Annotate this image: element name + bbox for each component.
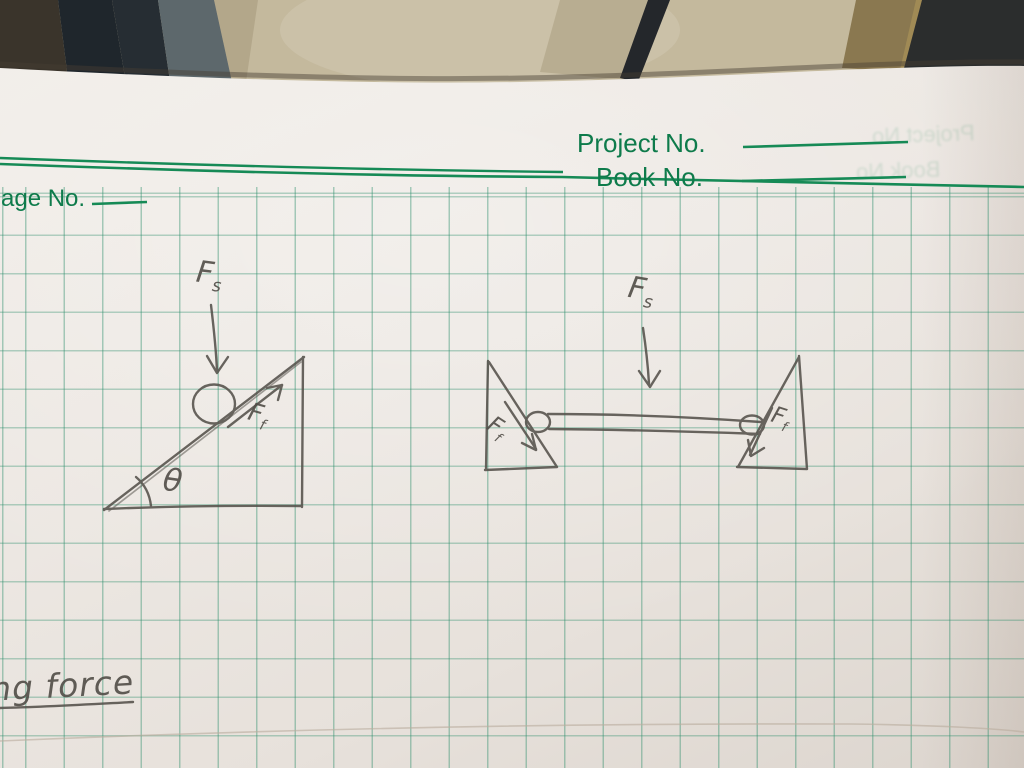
left-spring-force-label: Fs xyxy=(194,255,225,297)
caption-text: ng force xyxy=(0,662,135,708)
notebook-page: Project No. Book No. age No. Project No … xyxy=(0,0,1024,768)
page-curl-shadow xyxy=(0,724,1024,741)
left-roller xyxy=(526,412,550,432)
spring-force-arrow xyxy=(211,305,217,371)
pencil-drawings xyxy=(0,0,1024,768)
ball xyxy=(193,385,235,424)
bar-top-edge xyxy=(548,414,761,422)
right-fixture-diagram xyxy=(485,328,807,470)
incline-base xyxy=(104,506,301,509)
incline-right-side xyxy=(302,357,303,507)
incline-hypotenuse-double-stroke xyxy=(109,362,301,511)
spring-force-arrow xyxy=(643,328,649,384)
photo-of-lab-notebook: Project No. Book No. age No. Project No … xyxy=(0,0,1024,768)
angle-arc xyxy=(136,477,151,506)
left-incline-diagram xyxy=(104,305,304,511)
bar-bottom-edge xyxy=(549,429,760,434)
incline-hypotenuse xyxy=(104,357,304,510)
